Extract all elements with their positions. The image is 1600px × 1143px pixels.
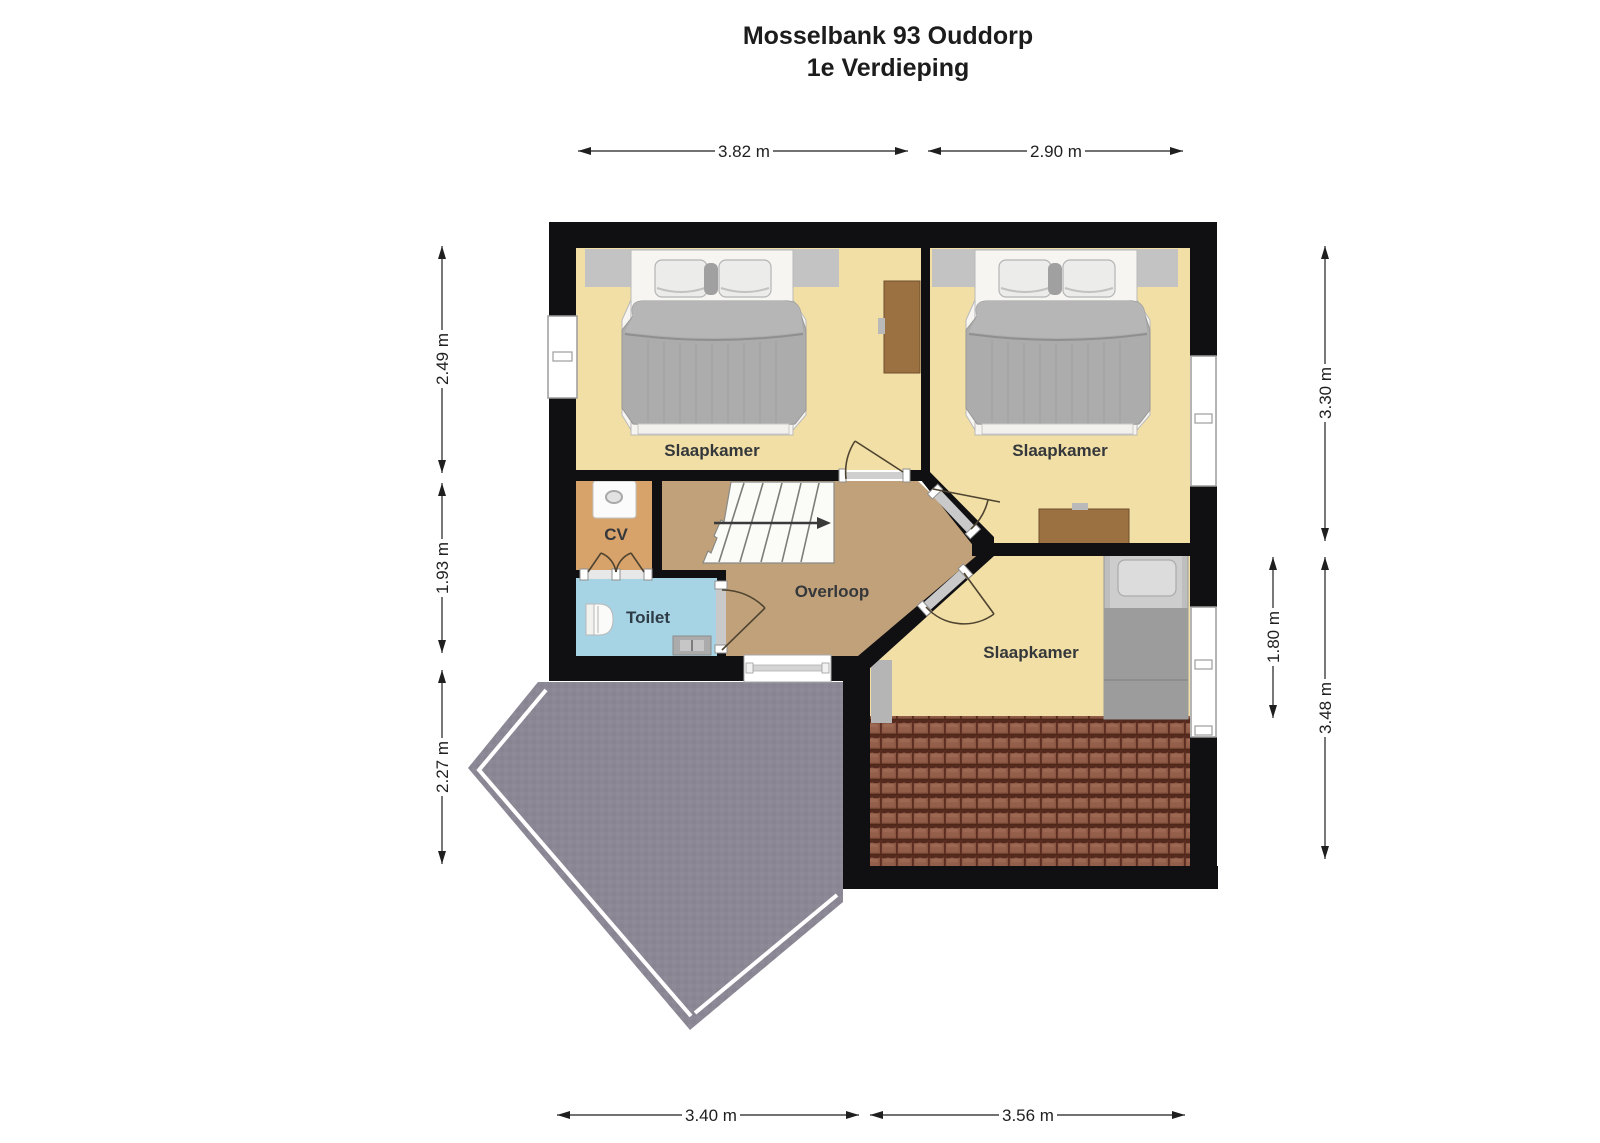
svg-text:Overloop: Overloop	[795, 582, 870, 601]
svg-text:1e Verdieping: 1e Verdieping	[807, 54, 970, 82]
svg-text:3.82 m: 3.82 m	[718, 142, 770, 161]
svg-text:Mosselbank 93 Ouddorp: Mosselbank 93 Ouddorp	[743, 22, 1033, 50]
svg-text:Slaapkamer: Slaapkamer	[664, 441, 760, 460]
svg-text:Slaapkamer: Slaapkamer	[983, 643, 1079, 662]
svg-text:Toilet: Toilet	[626, 608, 670, 627]
svg-text:CV: CV	[604, 525, 628, 544]
svg-text:3.30 m: 3.30 m	[1316, 367, 1335, 419]
svg-text:2.27 m: 2.27 m	[433, 741, 452, 793]
svg-text:3.40 m: 3.40 m	[685, 1106, 737, 1125]
svg-text:2.49 m: 2.49 m	[433, 333, 452, 385]
svg-text:2.90 m: 2.90 m	[1030, 142, 1082, 161]
svg-text:3.48 m: 3.48 m	[1316, 682, 1335, 734]
svg-text:Slaapkamer: Slaapkamer	[1012, 441, 1108, 460]
svg-text:1.80 m: 1.80 m	[1264, 611, 1283, 663]
svg-text:1.93 m: 1.93 m	[433, 542, 452, 594]
svg-text:3.56 m: 3.56 m	[1002, 1106, 1054, 1125]
